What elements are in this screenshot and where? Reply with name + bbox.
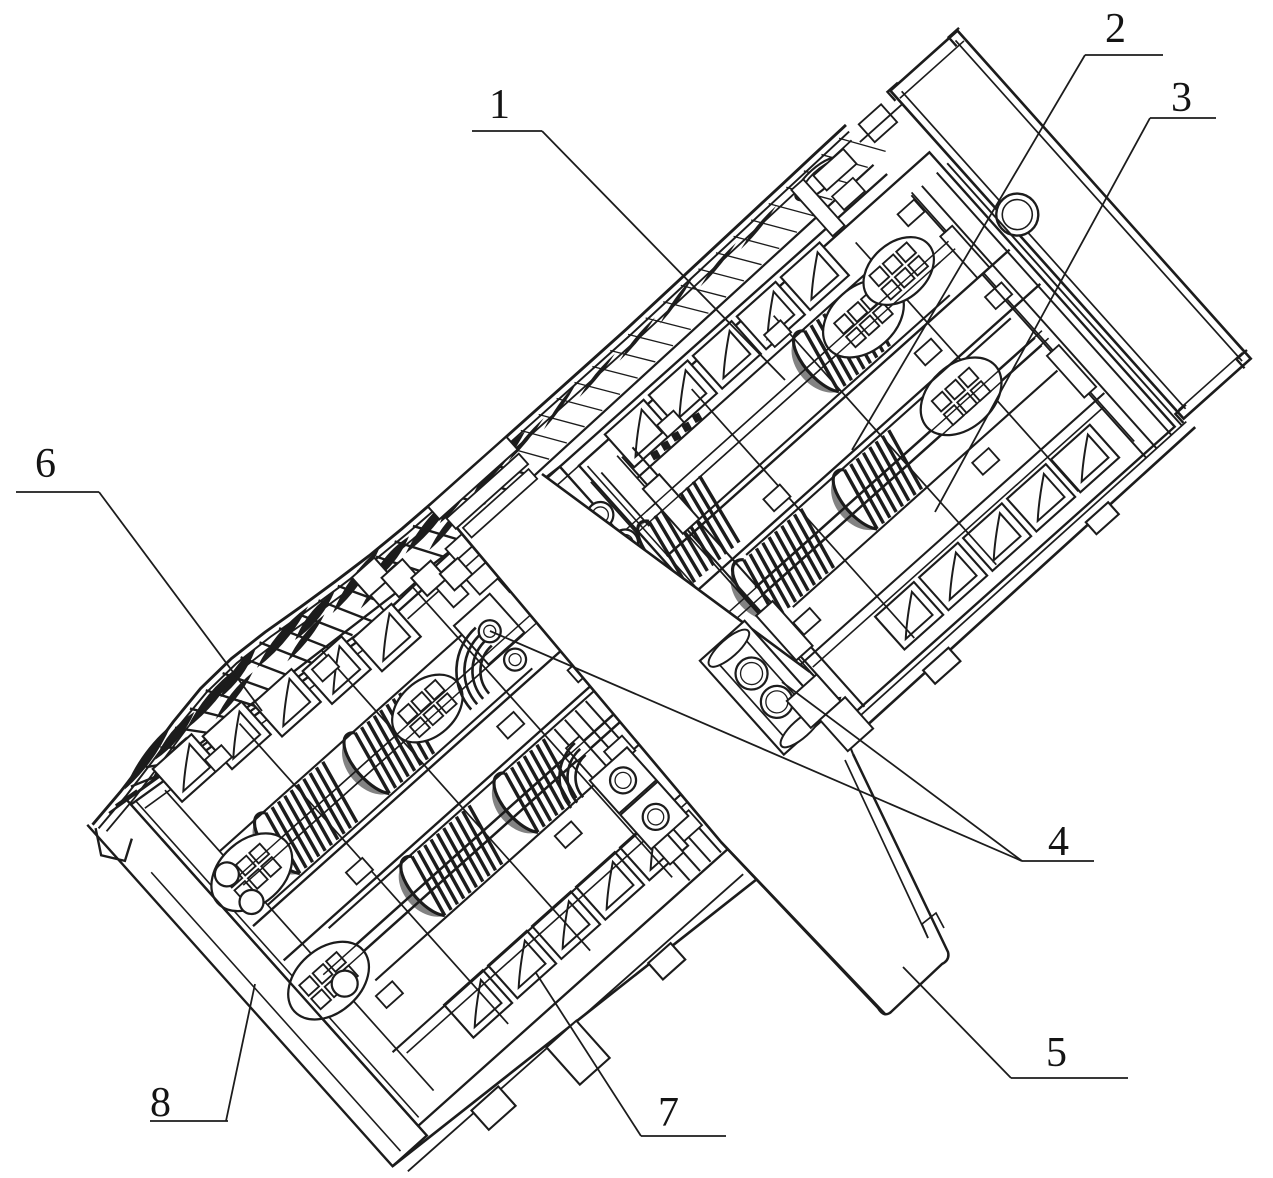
svg-text:6: 6: [35, 441, 56, 487]
svg-text:4: 4: [1048, 819, 1069, 865]
svg-text:1: 1: [489, 82, 510, 128]
svg-text:8: 8: [150, 1080, 171, 1126]
svg-text:7: 7: [658, 1090, 679, 1136]
svg-text:3: 3: [1171, 75, 1192, 121]
svg-text:5: 5: [1046, 1030, 1067, 1076]
svg-text:2: 2: [1105, 6, 1126, 52]
